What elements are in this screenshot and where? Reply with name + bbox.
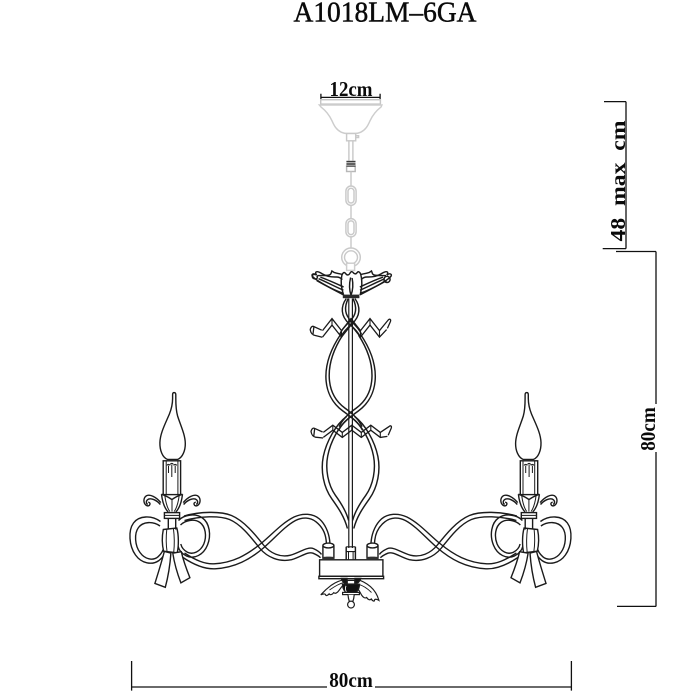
svg-text:A1018LM–6GA: A1018LM–6GA <box>294 0 477 28</box>
svg-text:48 max cm: 48 max cm <box>606 120 630 242</box>
svg-text:80cm: 80cm <box>329 668 373 692</box>
svg-text:80cm: 80cm <box>636 407 660 451</box>
